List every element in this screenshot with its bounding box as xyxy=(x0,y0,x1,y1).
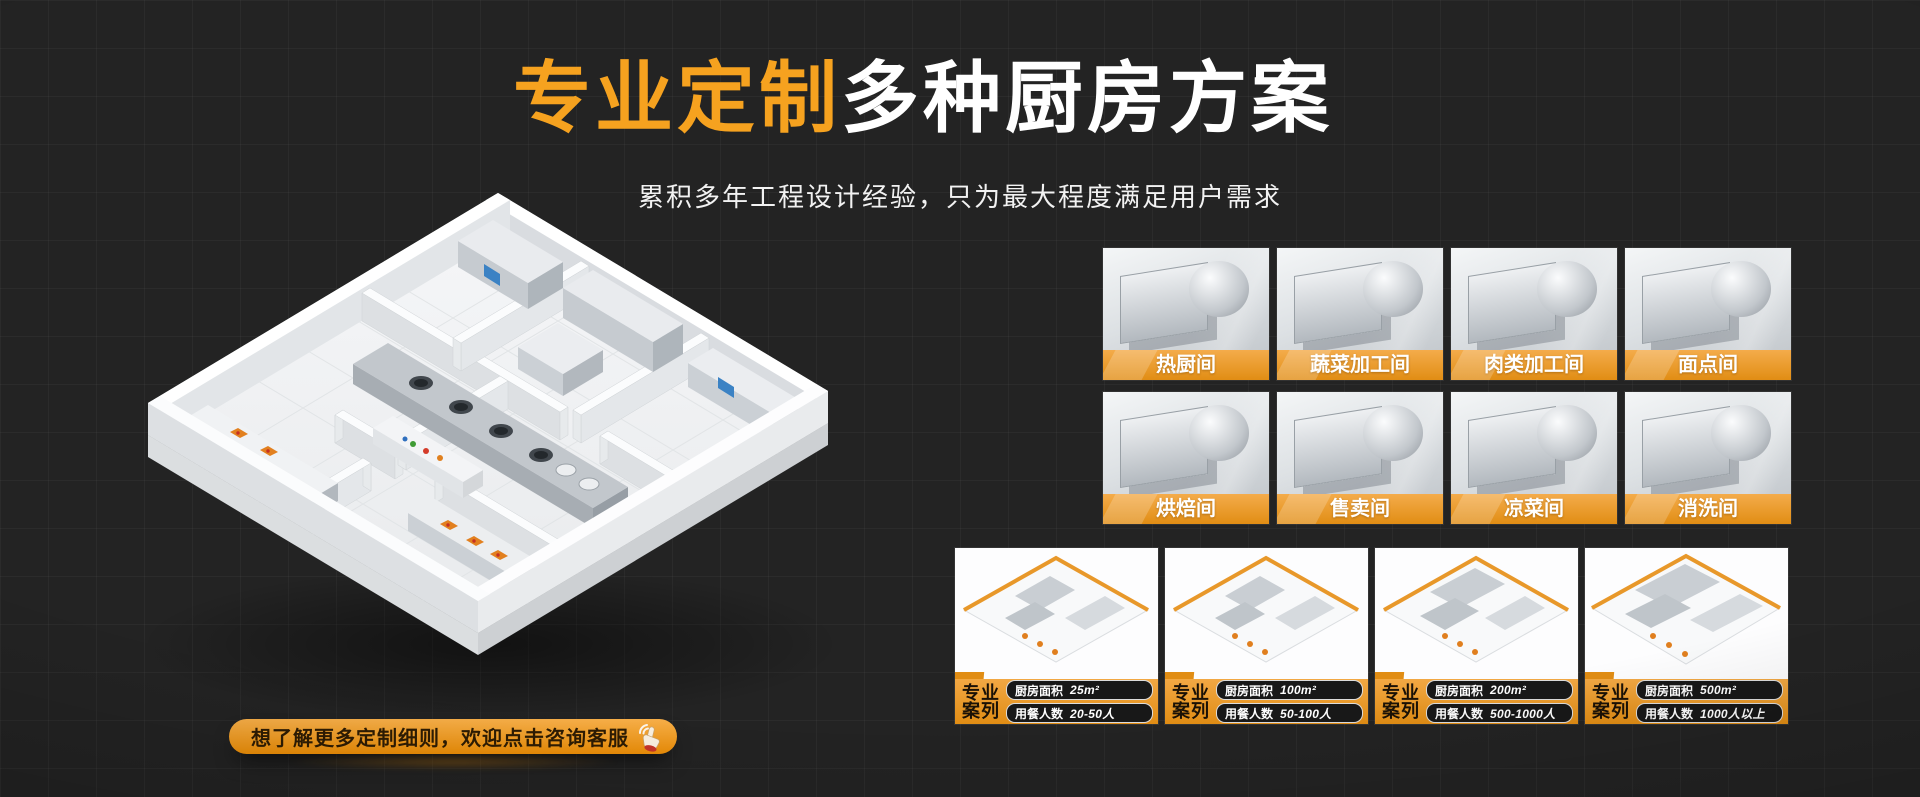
case-area-label: 厨房面积 xyxy=(1015,682,1063,699)
case-thumbnail xyxy=(955,548,1158,679)
case-tag-line2: 案列 xyxy=(962,702,1000,720)
kitchen-floorplan-illustration xyxy=(118,192,848,712)
case-card-500m2: 专业 案列 厨房面积 500m² 用餐人数 1000人以上 xyxy=(1585,548,1788,724)
room-label: 消洗间 xyxy=(1625,494,1791,524)
case-thumbnail xyxy=(1585,548,1788,679)
case-area-label: 厨房面积 xyxy=(1435,682,1483,699)
case-pills: 厨房面积 200m² 用餐人数 500-1000人 xyxy=(1426,680,1573,723)
case-diners-label: 用餐人数 xyxy=(1225,705,1273,722)
room-label: 面点间 xyxy=(1625,350,1791,380)
contact-service-button[interactable]: 想了解更多定制细则，欢迎点击咨询客服 xyxy=(229,719,677,754)
case-diners-label: 用餐人数 xyxy=(1645,705,1693,722)
case-area-value: 200m² xyxy=(1490,683,1526,697)
room-tiles-grid: 热厨间 蔬菜加工间 肉类加工间 面点间 烘焙间 售卖间 凉菜间 消洗间 xyxy=(1103,248,1791,524)
room-tile-vegetable-processing: 蔬菜加工间 xyxy=(1277,248,1443,380)
case-tag-line1: 专业 xyxy=(1172,684,1210,702)
page-title-rest: 多种厨房方案 xyxy=(841,54,1333,142)
case-tag: 专业 案列 xyxy=(1382,684,1420,720)
case-tag-line1: 专业 xyxy=(1592,684,1630,702)
room-label: 蔬菜加工间 xyxy=(1277,350,1443,380)
case-area-label: 厨房面积 xyxy=(1645,682,1693,699)
case-thumbnail xyxy=(1375,548,1578,679)
case-diners-label: 用餐人数 xyxy=(1435,705,1483,722)
case-tag-line1: 专业 xyxy=(962,684,1000,702)
case-area-label: 厨房面积 xyxy=(1225,682,1273,699)
case-cards-row: 专业 案列 厨房面积 25m² 用餐人数 20-50人 xyxy=(955,548,1788,724)
case-tag: 专业 案列 xyxy=(1172,684,1210,720)
room-label: 凉菜间 xyxy=(1451,494,1617,524)
case-diners-value: 50-100人 xyxy=(1280,705,1331,722)
case-pills: 厨房面积 500m² 用餐人数 1000人以上 xyxy=(1636,680,1783,723)
case-tag: 专业 案列 xyxy=(1592,684,1630,720)
case-tag-line1: 专业 xyxy=(1382,684,1420,702)
case-band: 专业 案列 厨房面积 100m² 用餐人数 50-100人 xyxy=(1165,679,1368,724)
promo-banner: { "hero": { "title_highlight": "专业定制", "… xyxy=(0,0,1920,797)
room-label: 售卖间 xyxy=(1277,494,1443,524)
case-pills: 厨房面积 25m² 用餐人数 20-50人 xyxy=(1006,680,1153,723)
floorplan-svg xyxy=(118,192,848,712)
case-band: 专业 案列 厨房面积 200m² 用餐人数 500-1000人 xyxy=(1375,679,1578,724)
case-card-25m2: 专业 案列 厨房面积 25m² 用餐人数 20-50人 xyxy=(955,548,1158,724)
case-area-value: 100m² xyxy=(1280,683,1316,697)
case-tag-line2: 案列 xyxy=(1592,702,1630,720)
room-label: 烘焙间 xyxy=(1103,494,1269,524)
case-area-pill: 厨房面积 500m² xyxy=(1636,680,1783,700)
hand-click-icon xyxy=(635,722,665,752)
case-thumbnail xyxy=(1165,548,1368,679)
page-title-highlight: 专业定制 xyxy=(513,54,841,142)
case-area-pill: 厨房面积 200m² xyxy=(1426,680,1573,700)
case-tag: 专业 案列 xyxy=(962,684,1000,720)
case-pills: 厨房面积 100m² 用餐人数 50-100人 xyxy=(1216,680,1363,723)
page-title: 专业定制多种厨房方案 xyxy=(0,50,1883,146)
case-diners-pill: 用餐人数 500-1000人 xyxy=(1426,703,1573,723)
case-diners-pill: 用餐人数 20-50人 xyxy=(1006,703,1153,723)
case-area-pill: 厨房面积 100m² xyxy=(1216,680,1363,700)
case-diners-pill: 用餐人数 50-100人 xyxy=(1216,703,1363,723)
case-area-value: 25m² xyxy=(1070,683,1099,697)
case-diners-value: 20-50人 xyxy=(1070,705,1115,722)
case-tag-line2: 案列 xyxy=(1172,702,1210,720)
case-diners-pill: 用餐人数 1000人以上 xyxy=(1636,703,1783,723)
room-tile-meat-processing: 肉类加工间 xyxy=(1451,248,1617,380)
case-card-100m2: 专业 案列 厨房面积 100m² 用餐人数 50-100人 xyxy=(1165,548,1368,724)
room-tile-hot-kitchen: 热厨间 xyxy=(1103,248,1269,380)
room-tile-dishwashing: 消洗间 xyxy=(1625,392,1791,524)
case-band: 专业 案列 厨房面积 25m² 用餐人数 20-50人 xyxy=(955,679,1158,724)
contact-service-label: 想了解更多定制细则，欢迎点击咨询客服 xyxy=(251,722,629,751)
case-card-200m2: 专业 案列 厨房面积 200m² 用餐人数 500-1000人 xyxy=(1375,548,1578,724)
room-tile-cold-dish: 凉菜间 xyxy=(1451,392,1617,524)
room-tile-sales: 售卖间 xyxy=(1277,392,1443,524)
room-label: 肉类加工间 xyxy=(1451,350,1617,380)
case-area-value: 500m² xyxy=(1700,683,1736,697)
case-tag-line2: 案列 xyxy=(1382,702,1420,720)
room-tile-pastry: 面点间 xyxy=(1625,248,1791,380)
case-diners-value: 1000人以上 xyxy=(1700,705,1765,722)
case-band: 专业 案列 厨房面积 500m² 用餐人数 1000人以上 xyxy=(1585,679,1788,724)
room-tile-baking: 烘焙间 xyxy=(1103,392,1269,524)
room-label: 热厨间 xyxy=(1103,350,1269,380)
case-diners-label: 用餐人数 xyxy=(1015,705,1063,722)
case-diners-value: 500-1000人 xyxy=(1490,705,1555,722)
case-area-pill: 厨房面积 25m² xyxy=(1006,680,1153,700)
